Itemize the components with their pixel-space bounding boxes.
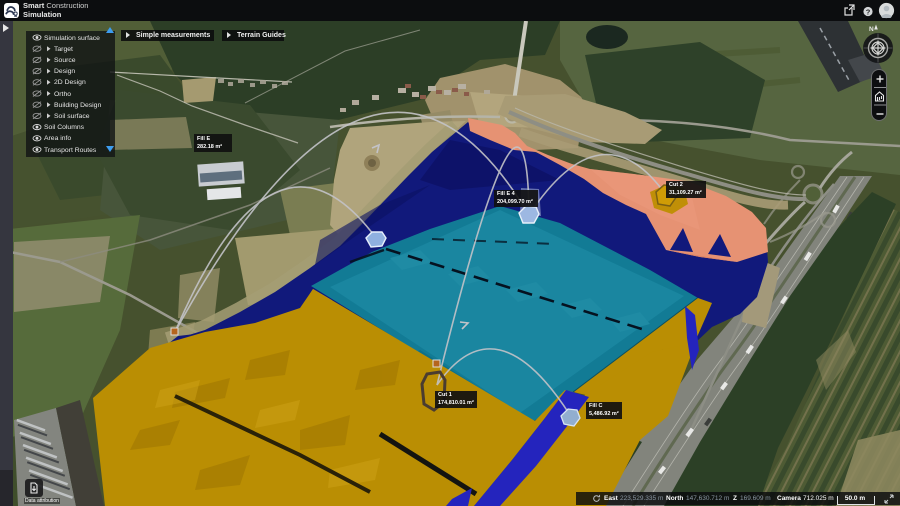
svg-text:N: N (869, 26, 874, 33)
svg-text:?: ? (866, 7, 871, 16)
